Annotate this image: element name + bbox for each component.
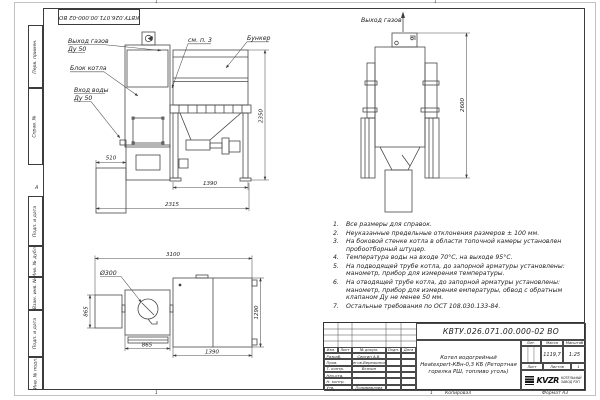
zone-mark-bottom: 1 — [155, 391, 158, 396]
note-text: На отводящей трубе котла, до запорной ар… — [346, 279, 589, 302]
kvzr-logo-text: KVZR — [536, 376, 558, 385]
note-number: 2. — [333, 230, 346, 238]
list-header: Лист — [521, 363, 543, 370]
label-water-in: Вход воды — [74, 87, 109, 94]
margin-cell-perv-primen: Перв. примен. — [28, 25, 43, 88]
note-text: Неуказанные предельные отклонения размер… — [346, 230, 589, 238]
bunker-outline — [170, 50, 251, 181]
dim-1390: 1390 — [203, 181, 217, 187]
listov-header: Листов — [543, 363, 571, 370]
gas-out-arrow — [401, 12, 405, 33]
title-block: Изм. Лист № докум. Подп. Дата Разраб.Сер… — [323, 322, 585, 390]
dim-2600: 2600 — [460, 98, 466, 112]
fold-mark: А — [35, 185, 38, 191]
sig-date — [401, 385, 416, 391]
sig-role: Утв. — [324, 385, 352, 391]
margin-label: Справ. № — [33, 115, 38, 137]
label-d300: Ø300 — [99, 269, 117, 277]
margin-label: Инв. № подл. — [33, 358, 38, 390]
product-line-2: Heatexpert-КВн-0,3 КБ (Ретортная — [420, 362, 517, 369]
label-water-in-dn: Ду 50 — [73, 95, 92, 102]
note-item: 5.На подводящей трубе котла, до запорной… — [333, 263, 589, 278]
margin-cell-inv-dubl: Инв. № дубл. — [28, 246, 43, 277]
margin-label: Перв. примен. — [33, 39, 38, 74]
doc-number-cell: КВТУ.026.071.00.000-02 ВО — [416, 323, 586, 340]
dim-3100: 3100 — [166, 252, 180, 258]
boiler-block-outline — [96, 32, 170, 213]
masshtab-value: 1:25 — [563, 346, 586, 363]
signature-table: Разраб.Сергин А.В. Пров.Онегов-Вережинск… — [324, 353, 416, 391]
dim-510: 510 — [106, 156, 117, 162]
note-number: 7. — [333, 303, 346, 311]
margin-cell-podp-data-2: Подп. и дата — [28, 310, 43, 357]
note-number: 3. — [333, 238, 346, 253]
lit-value-cell — [521, 346, 541, 363]
margin-label: Подп. и дата — [33, 318, 38, 349]
lit-subcells — [522, 346, 540, 363]
technical-notes: 1.Все размеры для справок. 2.Неуказанные… — [333, 221, 589, 311]
plan-dimensions: 3100 Ø300 865 865 1390 1290 — [84, 252, 265, 358]
note-text: На подводящей трубе котла, до запорной а… — [346, 263, 589, 278]
note-number: 6. — [333, 279, 346, 302]
sig-sign — [386, 385, 401, 391]
company-logo-cell: KVZR КОТЕЛЬНЫЙ ЗАВОД РЭП — [521, 370, 586, 391]
side-outline — [361, 33, 439, 212]
sig-name: Полимарлова — [352, 385, 386, 391]
label-gas-out-side: Выход газов — [361, 17, 402, 24]
note-number: 1. — [333, 221, 346, 229]
dim-2315: 2315 — [165, 202, 179, 208]
label-bunker: Бункер — [247, 35, 270, 42]
zone-mark: 1 — [434, 0, 437, 5]
note-text: Остальные требования по ОСТ 108.030.133-… — [346, 303, 589, 311]
label-boiler-block: Блок котла — [70, 65, 107, 72]
product-line-1: Котел водогрейный — [440, 355, 497, 362]
note-item: 1.Все размеры для справок. — [333, 221, 589, 229]
front-view: 510 1390 2315 2350 Выход газов Ду 50 Бло… — [58, 8, 283, 220]
product-line-3: горелка РШ, топливо уголь) — [428, 369, 508, 376]
drawing-sheet: 1 1 КВТУ.026.071.00.000-02 ВО Перв. прим… — [0, 0, 600, 400]
label-gas-out-dn: Ду 50 — [67, 46, 86, 53]
label-see-note: см. п. 3 — [188, 37, 212, 44]
kvzr-logo-icon — [525, 376, 534, 385]
margin-label: Взам. инв. № — [33, 278, 38, 309]
note-item: 7.Остальные требования по ОСТ 108.030.13… — [333, 303, 589, 311]
margin-label: Инв. № дубл. — [33, 246, 38, 277]
dim-865h: 865 — [142, 343, 153, 349]
massa-value: 1119,7 — [541, 346, 563, 363]
dim-865v: 865 — [84, 306, 90, 317]
change-record-table — [324, 323, 416, 347]
sheets-row: Лист Листов 1 — [521, 363, 586, 370]
dim-1390-plan: 1390 — [205, 350, 219, 356]
kvzr-logo-caption: КОТЕЛЬНЫЙ ЗАВОД РЭП — [561, 377, 582, 385]
zone-mark-bottom: 1 — [430, 391, 433, 396]
zone-mark: 1 — [155, 0, 158, 5]
logo-caption-line-2: ЗАВОД РЭП — [561, 381, 582, 385]
format-label: Формат А3 — [542, 391, 568, 396]
note-item: 4.Температура воды на входе 70°С, на вых… — [333, 254, 589, 262]
listov-value: 1 — [571, 363, 586, 370]
side-view: Выход газов 2600 — [358, 8, 493, 223]
doc-number: КВТУ.026.071.00.000-02 ВО — [443, 327, 559, 336]
note-text: Температура воды на входе 70°С, на выход… — [346, 254, 589, 262]
plan-outline — [95, 275, 257, 347]
kopiroval-label: Копировал — [445, 391, 471, 396]
margin-cell-podp-data-1: Подп. и дата — [28, 196, 43, 246]
plan-view: 3100 Ø300 865 865 1390 1290 — [75, 245, 275, 370]
note-number: 4. — [333, 254, 346, 262]
dim-1290: 1290 — [254, 305, 260, 319]
note-item: 2.Неуказанные предельные отклонения разм… — [333, 230, 589, 238]
product-name-cell: Котел водогрейный Heatexpert-КВн-0,3 КБ … — [416, 340, 521, 391]
note-number: 5. — [333, 263, 346, 278]
margin-cell-vzam-inv: Взам. инв. № — [28, 277, 43, 310]
margin-cell-sprav-no: Справ. № — [28, 88, 43, 165]
note-item: 3.На боковой стенке котла в области топо… — [333, 238, 589, 253]
dim-2350: 2350 — [259, 109, 265, 123]
margin-label: Подп. и дата — [33, 205, 38, 236]
margin-cell-inv-podl: Инв. № подл. — [28, 357, 43, 390]
note-item: 6.На отводящей трубе котла, до запорной … — [333, 279, 589, 302]
front-labels: Выход газов Ду 50 Блок котла Вход воды Д… — [67, 35, 270, 138]
note-text: Все размеры для справок. — [346, 221, 589, 229]
label-gas-out: Выход газов — [68, 38, 109, 45]
note-text: На боковой стенке котла в области топочн… — [346, 238, 589, 253]
